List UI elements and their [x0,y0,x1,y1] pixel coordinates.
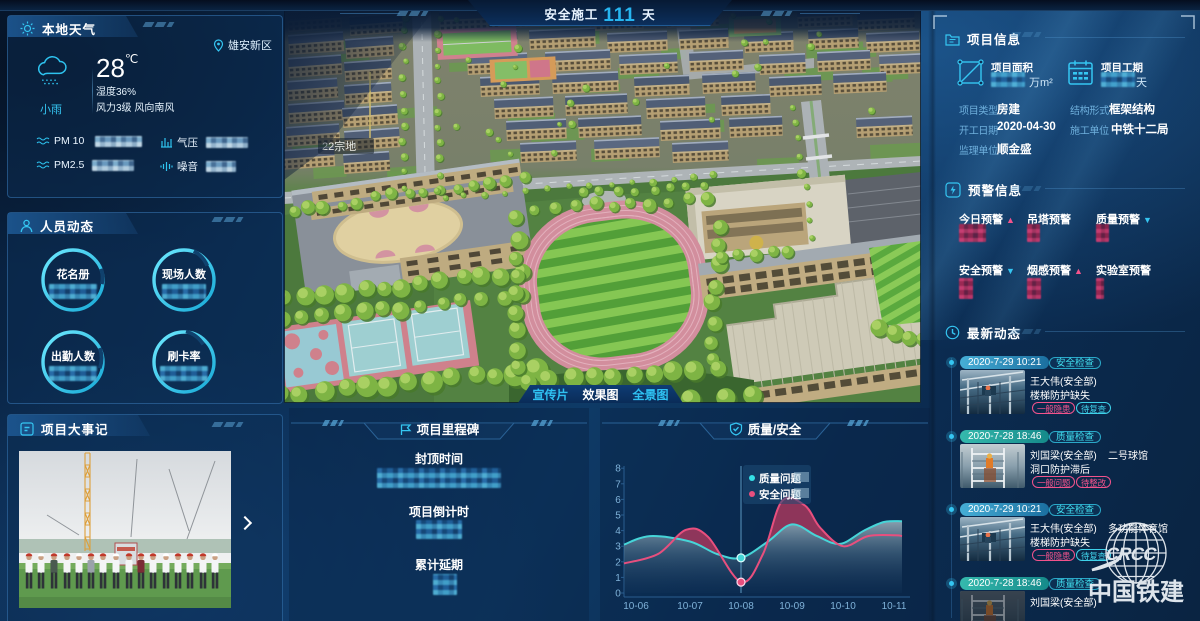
svg-text:CRCC: CRCC [1104,543,1159,564]
svg-text:5: 5 [615,511,621,522]
svg-text:7: 7 [615,479,621,490]
svg-text:10-10: 10-10 [830,601,856,612]
svg-text:10-11: 10-11 [882,601,907,612]
svg-text:10-07: 10-07 [677,601,703,612]
svg-text:0: 0 [615,589,621,600]
svg-text:10-08: 10-08 [728,601,754,612]
svg-text:10-09: 10-09 [779,601,805,612]
svg-text:10-06: 10-06 [623,601,649,612]
svg-text:3: 3 [615,542,621,553]
svg-text:8: 8 [615,464,621,475]
svg-text:中国铁建: 中国铁建 [1088,579,1184,606]
svg-text:2: 2 [615,557,621,568]
svg-text:4: 4 [615,526,621,537]
svg-text:1: 1 [615,573,621,584]
svg-text:6: 6 [615,495,621,506]
